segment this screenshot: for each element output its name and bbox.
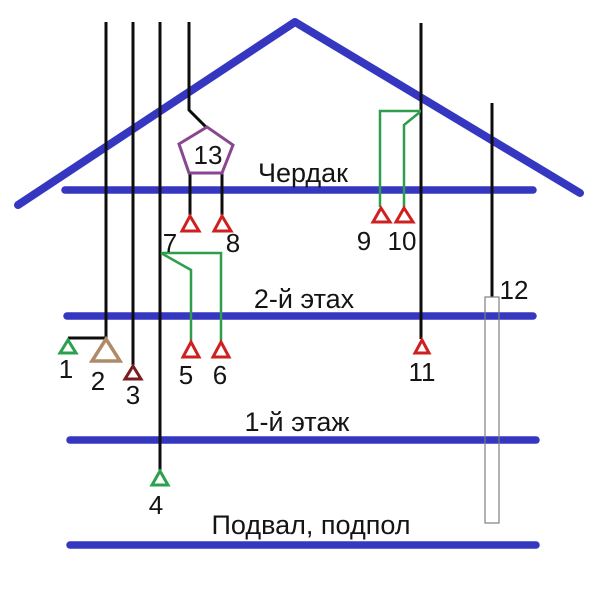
triangle-marker-4 bbox=[152, 471, 168, 485]
label-12: 12 bbox=[500, 275, 529, 305]
house-wiring-diagram: Чердак 2-й этах 1-й этаж Подвал, подпол … bbox=[0, 0, 600, 600]
label-11: 11 bbox=[409, 357, 436, 387]
label-8: 8 bbox=[226, 228, 240, 258]
label-3: 3 bbox=[126, 380, 140, 410]
duct-rect-12 bbox=[485, 297, 499, 523]
diagram-canvas: Чердак 2-й этах 1-й этаж Подвал, подпол … bbox=[0, 0, 600, 600]
point-number-labels: 1 2 3 4 5 6 7 8 9 10 11 12 13 bbox=[59, 140, 529, 520]
label-7: 7 bbox=[163, 228, 177, 258]
second-floor-label: 2-й этах bbox=[254, 284, 355, 314]
label-6: 6 bbox=[213, 360, 227, 390]
triangle-marker-7 bbox=[182, 216, 199, 231]
label-4: 4 bbox=[149, 490, 163, 520]
basement-label: Подвал, подпол bbox=[212, 510, 411, 540]
triangle-marker-2 bbox=[92, 339, 120, 361]
triangle-marker-5 bbox=[183, 342, 199, 357]
first-floor-label: 1-й этаж bbox=[245, 407, 350, 437]
triangle-marker-6 bbox=[213, 342, 229, 357]
triangle-marker-9 bbox=[373, 208, 390, 222]
wire-5 bbox=[161, 253, 191, 341]
label-5: 5 bbox=[179, 360, 193, 390]
cable-1-2 bbox=[68, 22, 106, 338]
attic-label: Чердак bbox=[258, 158, 348, 188]
triangle-marker-11 bbox=[415, 340, 429, 353]
triangle-marker-10 bbox=[396, 208, 413, 222]
label-1: 1 bbox=[59, 354, 73, 384]
label-2: 2 bbox=[91, 366, 105, 396]
triangle-marker-3 bbox=[125, 366, 141, 379]
label-10: 10 bbox=[388, 226, 417, 256]
label-13: 13 bbox=[194, 140, 223, 170]
label-9: 9 bbox=[357, 226, 371, 256]
cable-13 bbox=[189, 22, 206, 127]
triangle-marker-1 bbox=[60, 340, 76, 353]
